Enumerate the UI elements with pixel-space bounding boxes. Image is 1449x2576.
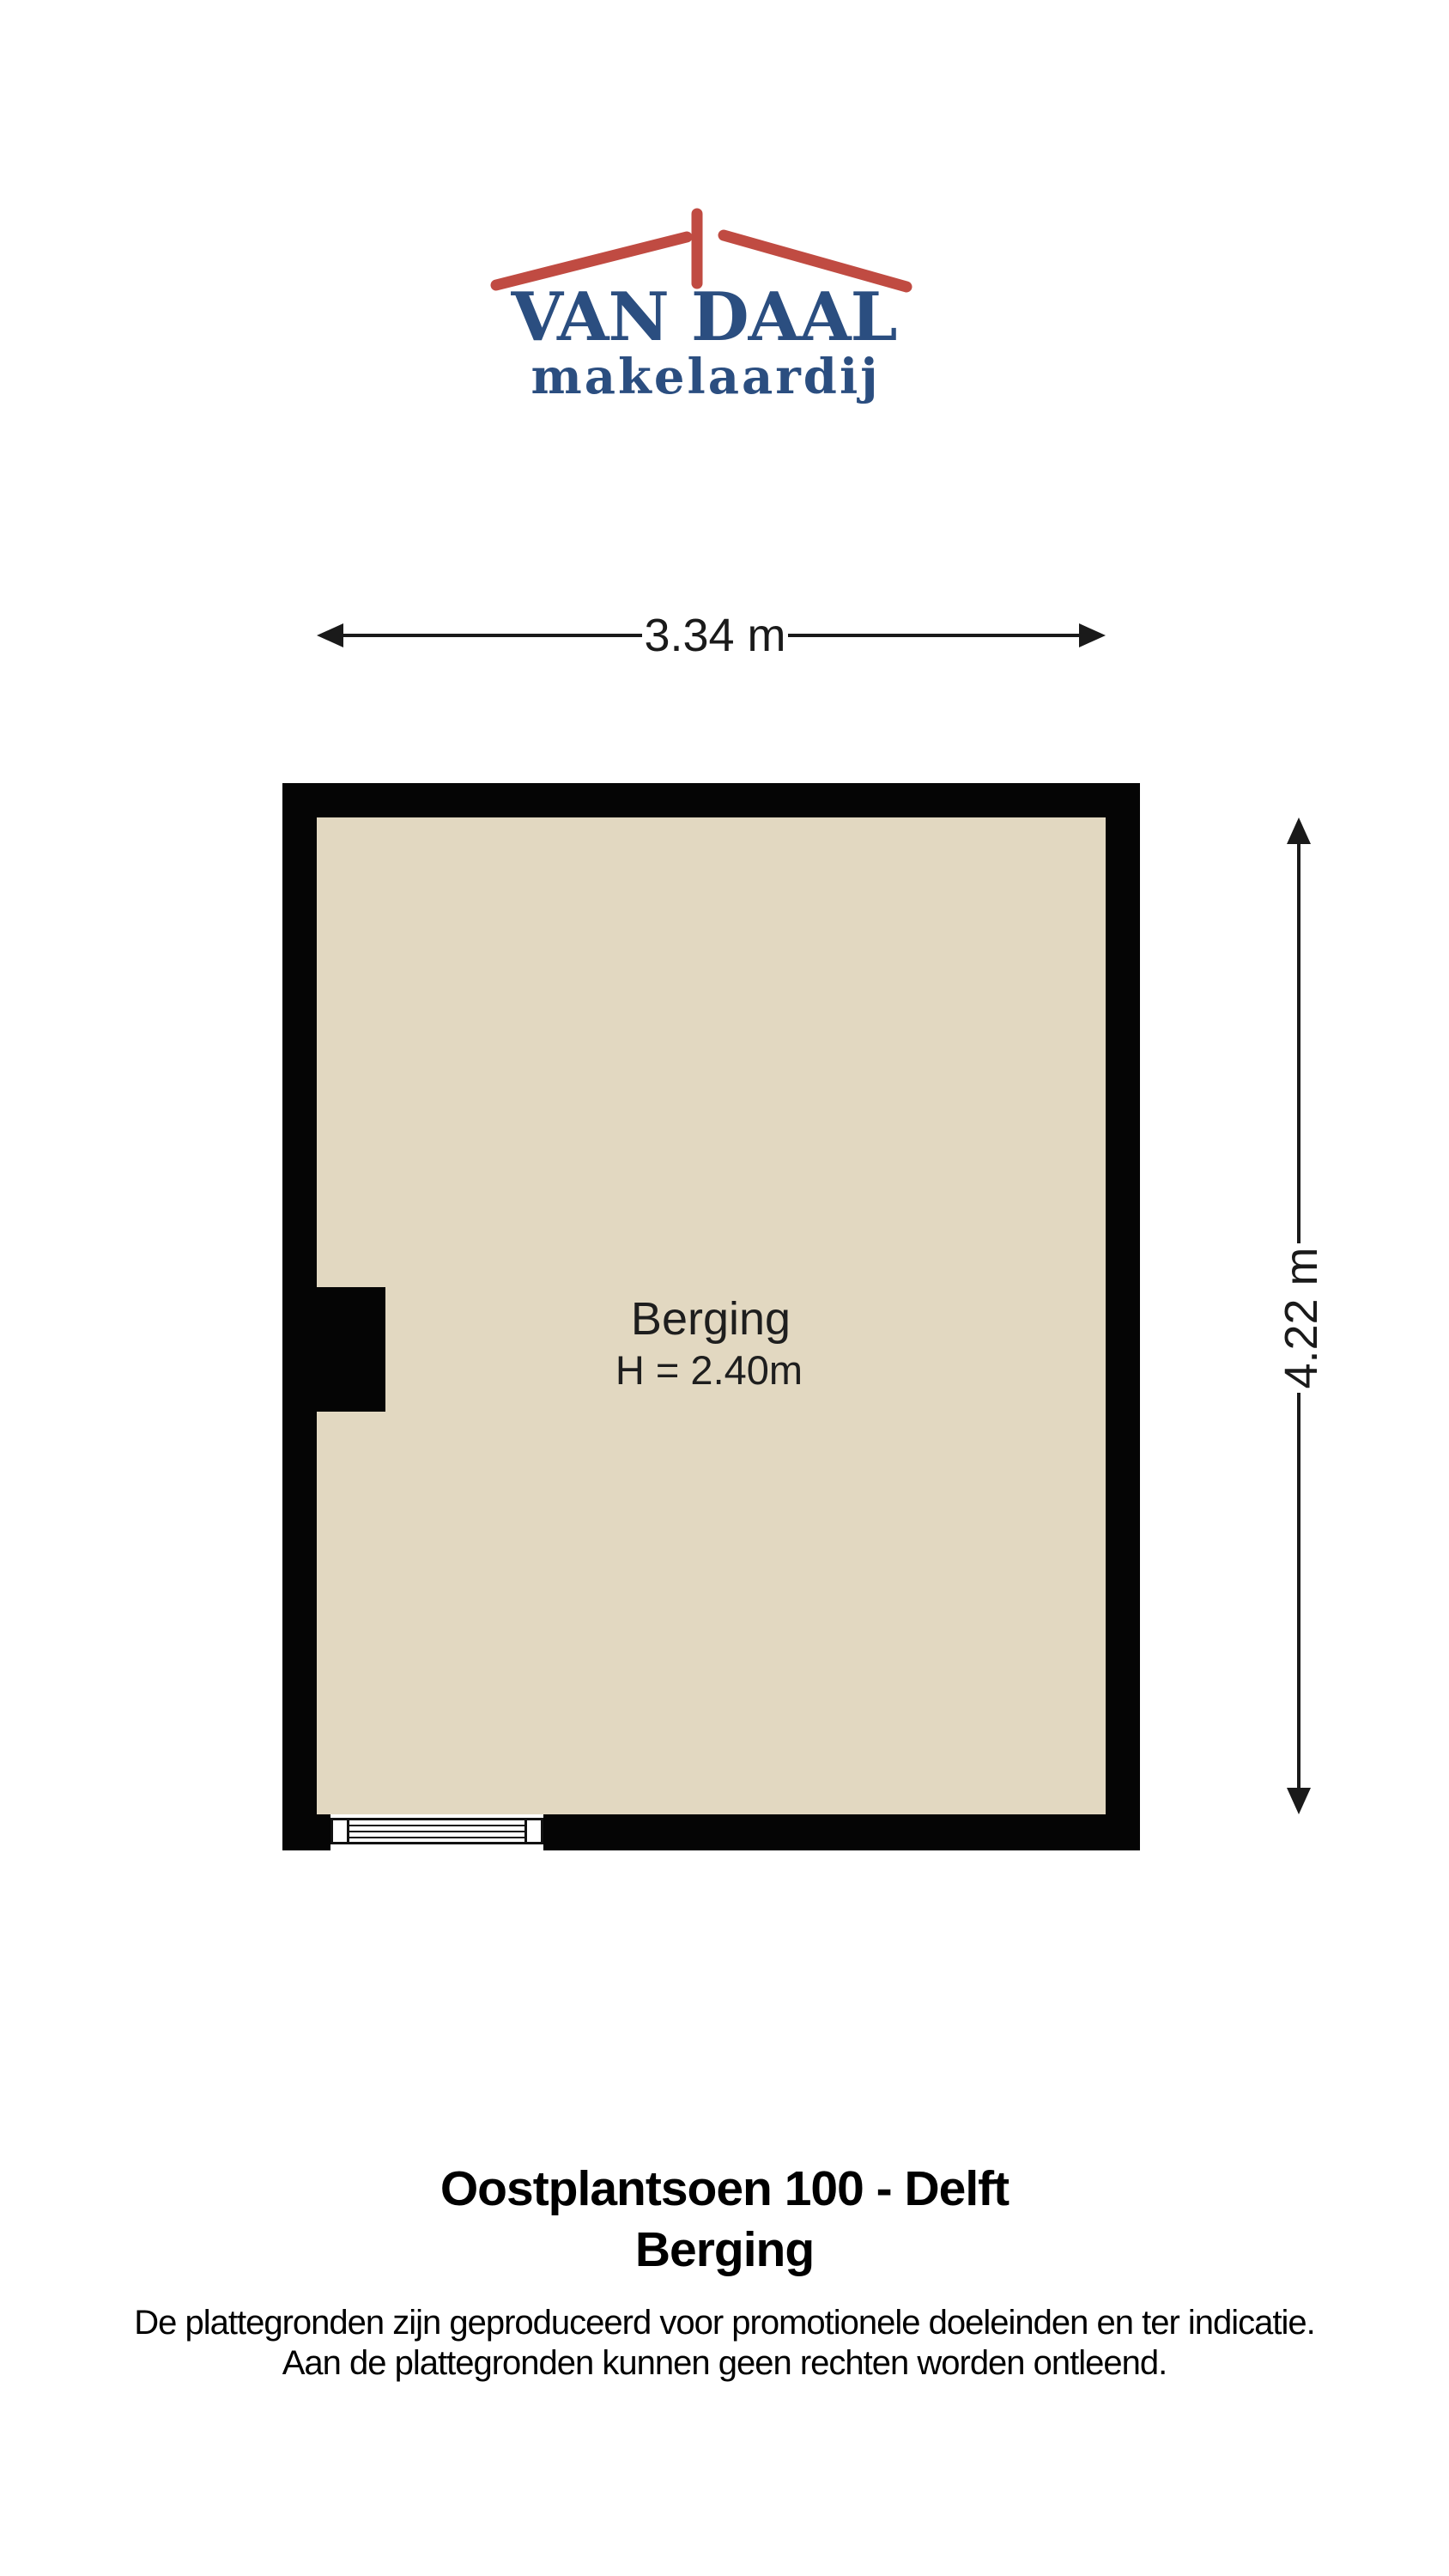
arrowhead-left-icon: [317, 623, 343, 647]
logo-subtitle: makelaardij: [530, 353, 880, 401]
door-jamb-left: [330, 1818, 349, 1844]
footer-subtitle: Berging: [0, 2226, 1449, 2275]
logo-roof-icon: [496, 214, 906, 287]
threshold-line: [349, 1825, 524, 1826]
threshold-line: [349, 1831, 524, 1832]
floorplan-page: VAN DAAL makelaardij 3.34 m Berging H = …: [0, 0, 1449, 2576]
door-threshold: [349, 1818, 524, 1844]
arrowhead-right-icon: [1079, 623, 1106, 647]
door-opening: [330, 1814, 543, 1850]
footer-title: Oostplantsoen 100 - Delft: [0, 2165, 1449, 2214]
logo-title: VAN DAAL: [512, 284, 897, 351]
arrowhead-down-icon: [1287, 1788, 1311, 1814]
disclaimer-line-1: De plattegronden zijn geproduceerd voor …: [0, 2306, 1449, 2340]
wall-column: [316, 1287, 385, 1412]
room-height-label: H = 2.40m: [615, 1350, 803, 1390]
door-jamb-right: [524, 1818, 543, 1844]
disclaimer-line-2: Aan de plattegronden kunnen geen rechten…: [0, 2346, 1449, 2380]
threshold-line: [349, 1837, 524, 1838]
height-dimension-label: 4.22 m: [1278, 1247, 1325, 1388]
arrowhead-up-icon: [1287, 817, 1311, 844]
width-dimension-label: 3.34 m: [644, 612, 785, 659]
room-label: Berging: [631, 1296, 791, 1342]
